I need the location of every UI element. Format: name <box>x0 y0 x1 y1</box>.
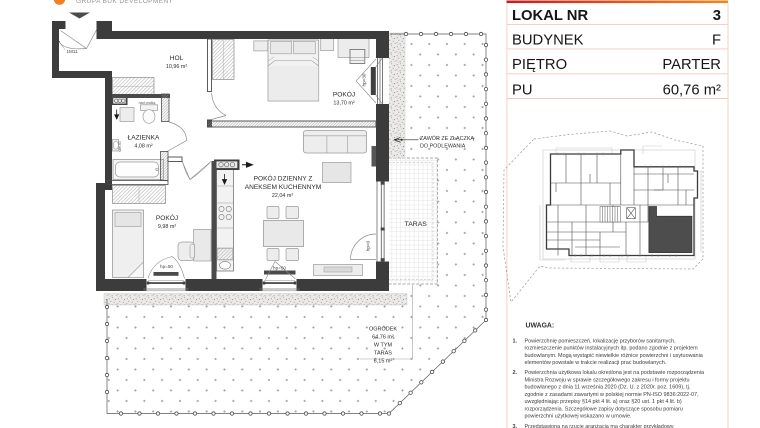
svg-text:ZAWÓR ZE ZŁĄCZKĄ: ZAWÓR ZE ZŁĄCZKĄ <box>420 135 474 142</box>
svg-text:hp=30: hp=30 <box>362 73 367 86</box>
svg-text:rozporządzenia. Szczegółowe za: rozporządzenia. Szczegółowe zapisy dotyc… <box>525 406 683 412</box>
svg-text:OGRÓDEK: OGRÓDEK <box>369 326 397 333</box>
svg-text:POKÓJ: POKÓJ <box>156 213 178 222</box>
svg-text:13,70 m²: 13,70 m² <box>333 101 354 107</box>
svg-text:4,08 m²: 4,08 m² <box>134 144 152 150</box>
svg-text:60,76 m²: 60,76 m² <box>663 82 721 98</box>
svg-text:22,04 m²: 22,04 m² <box>272 193 293 199</box>
svg-text:DO PODLEWANIA: DO PODLEWANIA <box>420 144 466 150</box>
svg-text:1M11: 1M11 <box>67 49 79 54</box>
svg-text:PARTER: PARTER <box>662 57 721 73</box>
svg-text:hp=0: hp=0 <box>366 240 371 251</box>
svg-text:PIĘTRO: PIĘTRO <box>512 57 567 73</box>
svg-text:HOL: HOL <box>170 55 184 62</box>
svg-text:elementów powstałe w trakcie r: elementów powstałe w trakcie realizacji … <box>525 360 667 366</box>
svg-text:2.: 2. <box>513 370 518 376</box>
svg-text:hp=50: hp=50 <box>273 266 286 271</box>
svg-text:hp=50: hp=50 <box>160 264 173 269</box>
svg-text:TARAS: TARAS <box>374 351 392 357</box>
svg-text:powierzchni użytkowej wskazano: powierzchni użytkowej wskazano w umowie. <box>525 414 632 420</box>
svg-text:BUDYNEK: BUDYNEK <box>512 32 584 48</box>
svg-text:uwzględniając przepisy §14 pkt: uwzględniając przepisy §14 pkt 4 lit. a)… <box>525 399 682 405</box>
svg-text:nad pralką: nad pralką <box>139 101 156 105</box>
svg-text:budowlanego z dnia 11 września: budowlanego z dnia 11 września 2020 (Dz.… <box>525 385 691 391</box>
svg-text:rozmieszczenie punktów instala: rozmieszczenie punktów instalacyjnych it… <box>525 346 699 352</box>
svg-text:F: F <box>712 32 721 48</box>
svg-text:TARAS: TARAS <box>405 221 428 228</box>
svg-text:budowlanym. Mogą wystąpić niew: budowlanym. Mogą wystąpić niewielkie róż… <box>525 353 704 359</box>
svg-text:POKÓJ DZIENNY Z: POKÓJ DZIENNY Z <box>254 174 313 183</box>
svg-text:ŁAZIENKA: ŁAZIENKA <box>128 135 160 142</box>
svg-text:Przedstawiona na rzucie aranża: Przedstawiona na rzucie aranżacja ma cha… <box>525 424 676 428</box>
svg-text:6,15 m²: 6,15 m² <box>374 359 393 365</box>
svg-text:Ministra Rozwoju w sprawie szc: Ministra Rozwoju w sprawie szczegółowego… <box>525 377 690 383</box>
svg-text:3.: 3. <box>513 424 518 428</box>
svg-text:64,76 m²: 64,76 m² <box>372 335 394 341</box>
svg-text:10,96 m²: 10,96 m² <box>166 64 187 70</box>
svg-text:zgodnie z zasadami zawartymi w: zgodnie z zasadami zawartymi w polskiej … <box>525 392 700 398</box>
svg-text:W TYM: W TYM <box>374 343 393 349</box>
svg-text:szer.60: szer.60 <box>118 141 122 152</box>
svg-text:POKÓJ: POKÓJ <box>333 90 355 99</box>
svg-text:1.: 1. <box>513 338 518 344</box>
svg-text:3: 3 <box>713 8 721 24</box>
svg-text:PU: PU <box>512 82 533 98</box>
svg-text:ANEKSEM KUCHENNYM: ANEKSEM KUCHENNYM <box>245 184 322 191</box>
svg-text:Powierzchnię pomieszczeń, loka: Powierzchnię pomieszczeń, lokalizację pr… <box>525 338 677 344</box>
svg-text:Powierzchnia użytkowa lokalu o: Powierzchnia użytkowa lokalu określona j… <box>525 370 706 376</box>
svg-text:UWAGA:: UWAGA: <box>526 323 555 330</box>
svg-text:GRUPA BUK DEVELOPMENT: GRUPA BUK DEVELOPMENT <box>76 0 173 5</box>
svg-text:LOKAL NR: LOKAL NR <box>512 8 588 24</box>
svg-text:9,98 m²: 9,98 m² <box>158 224 176 230</box>
